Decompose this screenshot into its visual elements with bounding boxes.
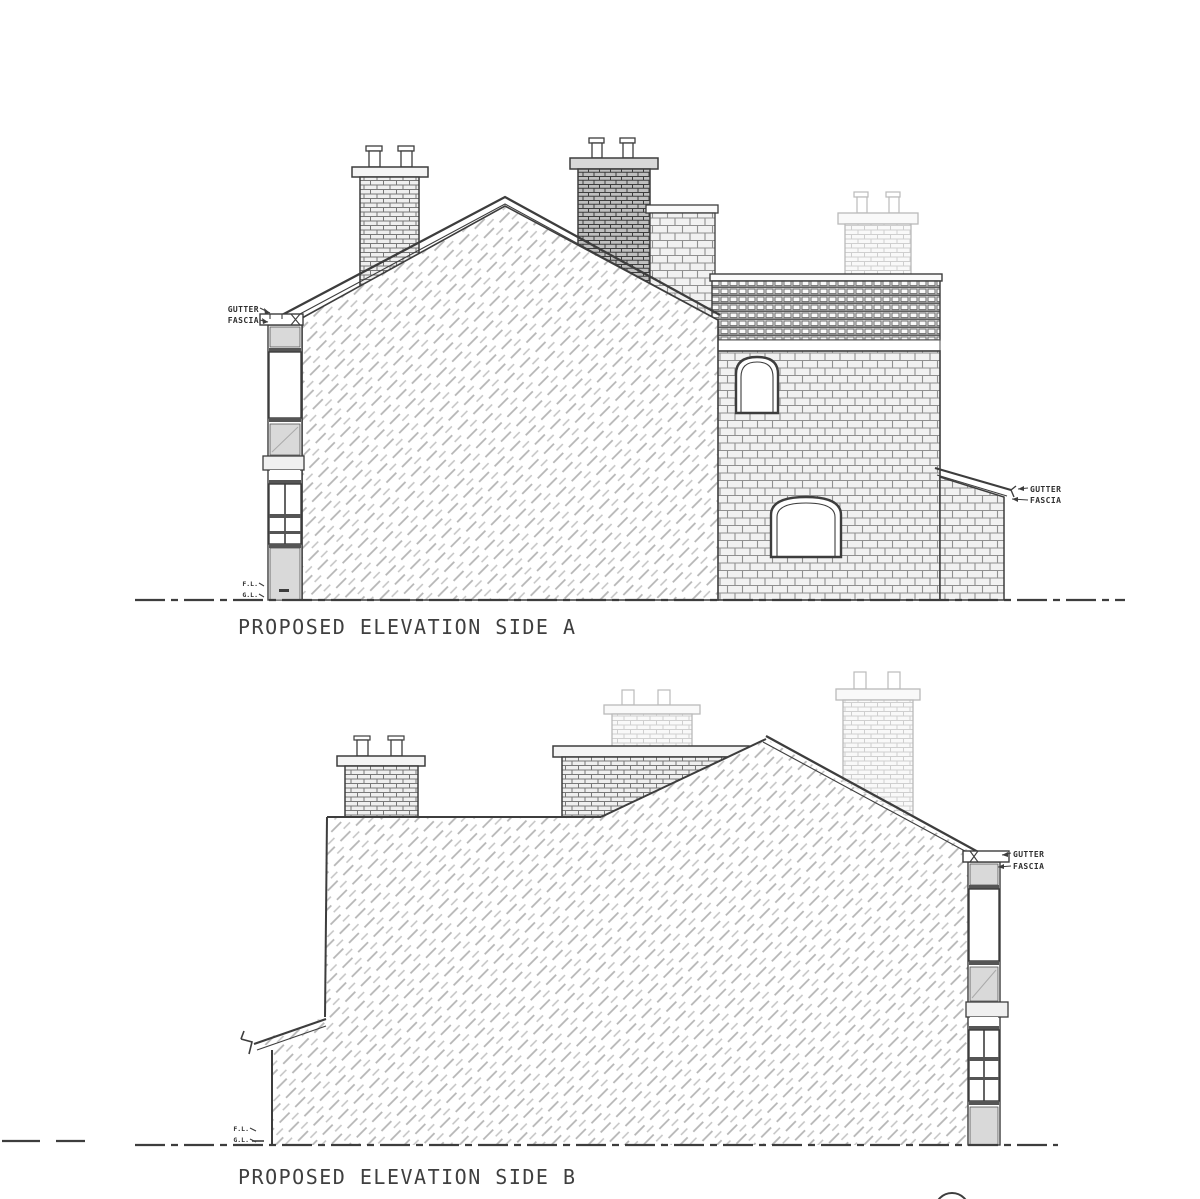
window-sill — [969, 961, 999, 965]
chimney-cap — [337, 756, 425, 766]
gutter-label: GUTTER — [228, 305, 259, 314]
window-transom — [969, 1077, 999, 1080]
chimney-stack — [845, 224, 911, 280]
chimney-pot — [357, 740, 368, 756]
tiled-roof — [710, 274, 942, 340]
right-extension — [935, 468, 1016, 600]
extension-wall — [940, 477, 1004, 600]
floor-level-label: F.L. — [233, 1125, 249, 1133]
chimney-pot — [391, 740, 402, 756]
level-mark — [279, 589, 289, 592]
leader-arrow — [264, 308, 270, 314]
elevation-b: GUTTER FASCIA F.L. G.L. PROPOSED ELEVATI… — [2, 672, 1058, 1199]
gutter-label: GUTTER — [1030, 485, 1061, 494]
elevation-drawings-svg: GUTTER FASCIA — [0, 0, 1200, 1199]
elevation-a: GUTTER FASCIA — [135, 138, 1125, 639]
spacer — [270, 470, 300, 480]
chimney-ghost-centre — [604, 690, 700, 747]
level-arrow — [250, 1128, 256, 1142]
right-bay-strip — [963, 851, 1009, 1145]
window-upper — [969, 889, 999, 961]
left-bay-strip — [260, 314, 304, 600]
coping — [553, 746, 749, 757]
fascia-label: FASCIA — [1013, 862, 1044, 871]
panel — [270, 548, 300, 600]
arched-window-small — [736, 357, 778, 413]
window-transom — [269, 531, 301, 534]
window-transom — [269, 514, 301, 518]
elevation-a-title: PROPOSED ELEVATION SIDE A — [238, 615, 577, 639]
arched-window-large — [771, 497, 841, 557]
architectural-drawing-sheet: GUTTER FASCIA — [0, 0, 1200, 1199]
ridge-coping — [710, 274, 942, 281]
level-arrow — [259, 583, 264, 597]
gutter-fascia-labels-right: GUTTER FASCIA — [1012, 485, 1061, 505]
chimney-stack — [612, 714, 692, 747]
gutter-hook — [241, 1031, 252, 1054]
panel — [270, 327, 300, 347]
gutter-assembly — [963, 851, 1009, 862]
spacer — [970, 1017, 998, 1026]
chimney-stack — [345, 766, 418, 818]
chimney-cap — [570, 158, 658, 169]
panel — [970, 1107, 998, 1145]
chimney-pot — [857, 197, 867, 213]
window-transom — [969, 1057, 999, 1061]
chimney-pot — [401, 151, 412, 167]
chimney-pot — [622, 690, 634, 705]
window-sill — [269, 418, 301, 422]
chimney-pot — [888, 672, 900, 689]
chimney-pot — [623, 143, 633, 158]
panel — [970, 864, 998, 885]
projecting-band — [263, 456, 304, 470]
chimney-cap — [352, 167, 428, 177]
chimney-cap — [836, 689, 920, 700]
floor-level-label: F.L. — [242, 580, 258, 588]
window-sill — [269, 544, 301, 548]
fascia-label: FASCIA — [1030, 496, 1061, 505]
fascia-band — [712, 340, 940, 351]
level-labels-a: F.L. G.L. — [242, 580, 264, 599]
chimney-cap — [838, 213, 918, 224]
fascia-label: FASCIA — [228, 316, 259, 325]
chimney-pot — [658, 690, 670, 705]
window-upper — [269, 352, 301, 418]
clipped-circle-symbol — [935, 1193, 969, 1199]
chimney-ghost-right — [838, 192, 918, 280]
ground-level-label: G.L. — [242, 591, 258, 599]
gutter-tick — [1011, 486, 1016, 497]
chimney-pot — [889, 197, 899, 213]
chimney-pot — [854, 672, 866, 689]
elevation-b-title: PROPOSED ELEVATION SIDE B — [238, 1165, 577, 1189]
window-sill — [969, 1101, 999, 1105]
chimney-cap — [604, 705, 700, 714]
chimney-left-b — [337, 736, 425, 818]
chimney-pot — [369, 151, 380, 167]
coping — [646, 205, 718, 213]
ground-level-label: G.L. — [233, 1136, 249, 1144]
projecting-band — [966, 1002, 1008, 1017]
gutter-label: GUTTER — [1013, 850, 1044, 859]
chimney-pot — [592, 143, 602, 158]
level-labels-b: F.L. G.L. — [233, 1125, 264, 1144]
